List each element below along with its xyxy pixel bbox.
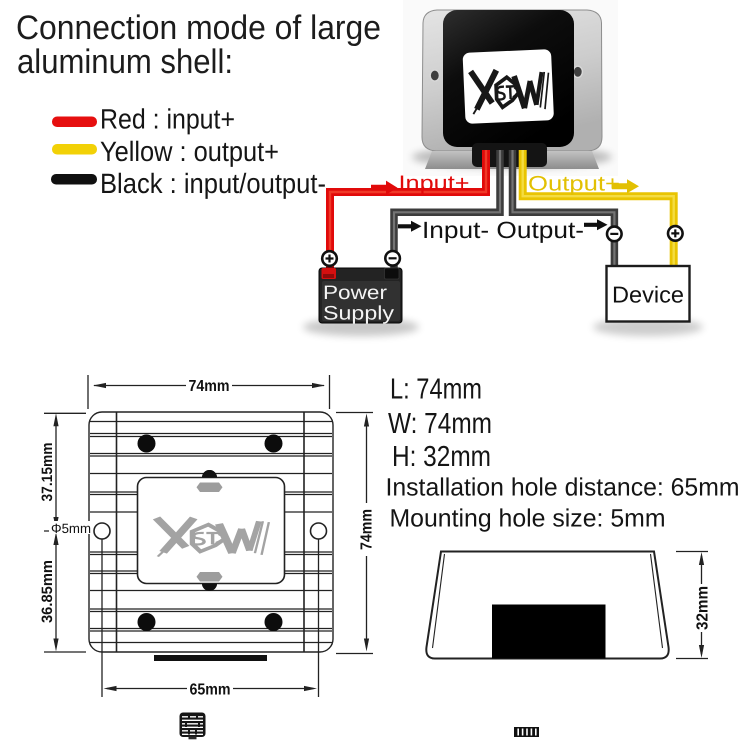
svg-text:Φ5mm: Φ5mm bbox=[51, 521, 91, 536]
svg-text:74mm: 74mm bbox=[359, 509, 376, 550]
svg-text:Output+: Output+ bbox=[528, 173, 620, 196]
svg-text:Device: Device bbox=[612, 282, 684, 308]
svg-text:36.85mm: 36.85mm bbox=[39, 560, 56, 623]
svg-text:65mm: 65mm bbox=[190, 681, 231, 698]
svg-text:Power: Power bbox=[323, 282, 388, 304]
svg-text:Input- Output-: Input- Output- bbox=[422, 217, 584, 243]
svg-text:W: 74mm: W: 74mm bbox=[388, 408, 492, 440]
svg-text:L: 74mm: L: 74mm bbox=[390, 374, 482, 406]
svg-text:Black : input/output-: Black : input/output- bbox=[100, 168, 326, 199]
svg-text:Input+: Input+ bbox=[399, 172, 470, 195]
svg-text:Connection mode of large: Connection mode of large bbox=[16, 9, 381, 47]
svg-text:32mm: 32mm bbox=[695, 586, 712, 630]
svg-text:Supply: Supply bbox=[323, 303, 394, 325]
svg-text:37.15mm: 37.15mm bbox=[39, 443, 56, 502]
svg-text:Red : input+: Red : input+ bbox=[100, 103, 235, 134]
svg-text:Yellow : output+: Yellow : output+ bbox=[100, 136, 279, 167]
svg-text:H: 32mm: H: 32mm bbox=[392, 441, 491, 473]
svg-text:Installation hole distance: 65: Installation hole distance: 65mm bbox=[386, 474, 740, 502]
svg-text:aluminum shell:: aluminum shell: bbox=[17, 43, 233, 81]
svg-text:74mm: 74mm bbox=[189, 378, 230, 395]
svg-text:Mounting hole size: 5mm: Mounting hole size: 5mm bbox=[390, 505, 666, 533]
